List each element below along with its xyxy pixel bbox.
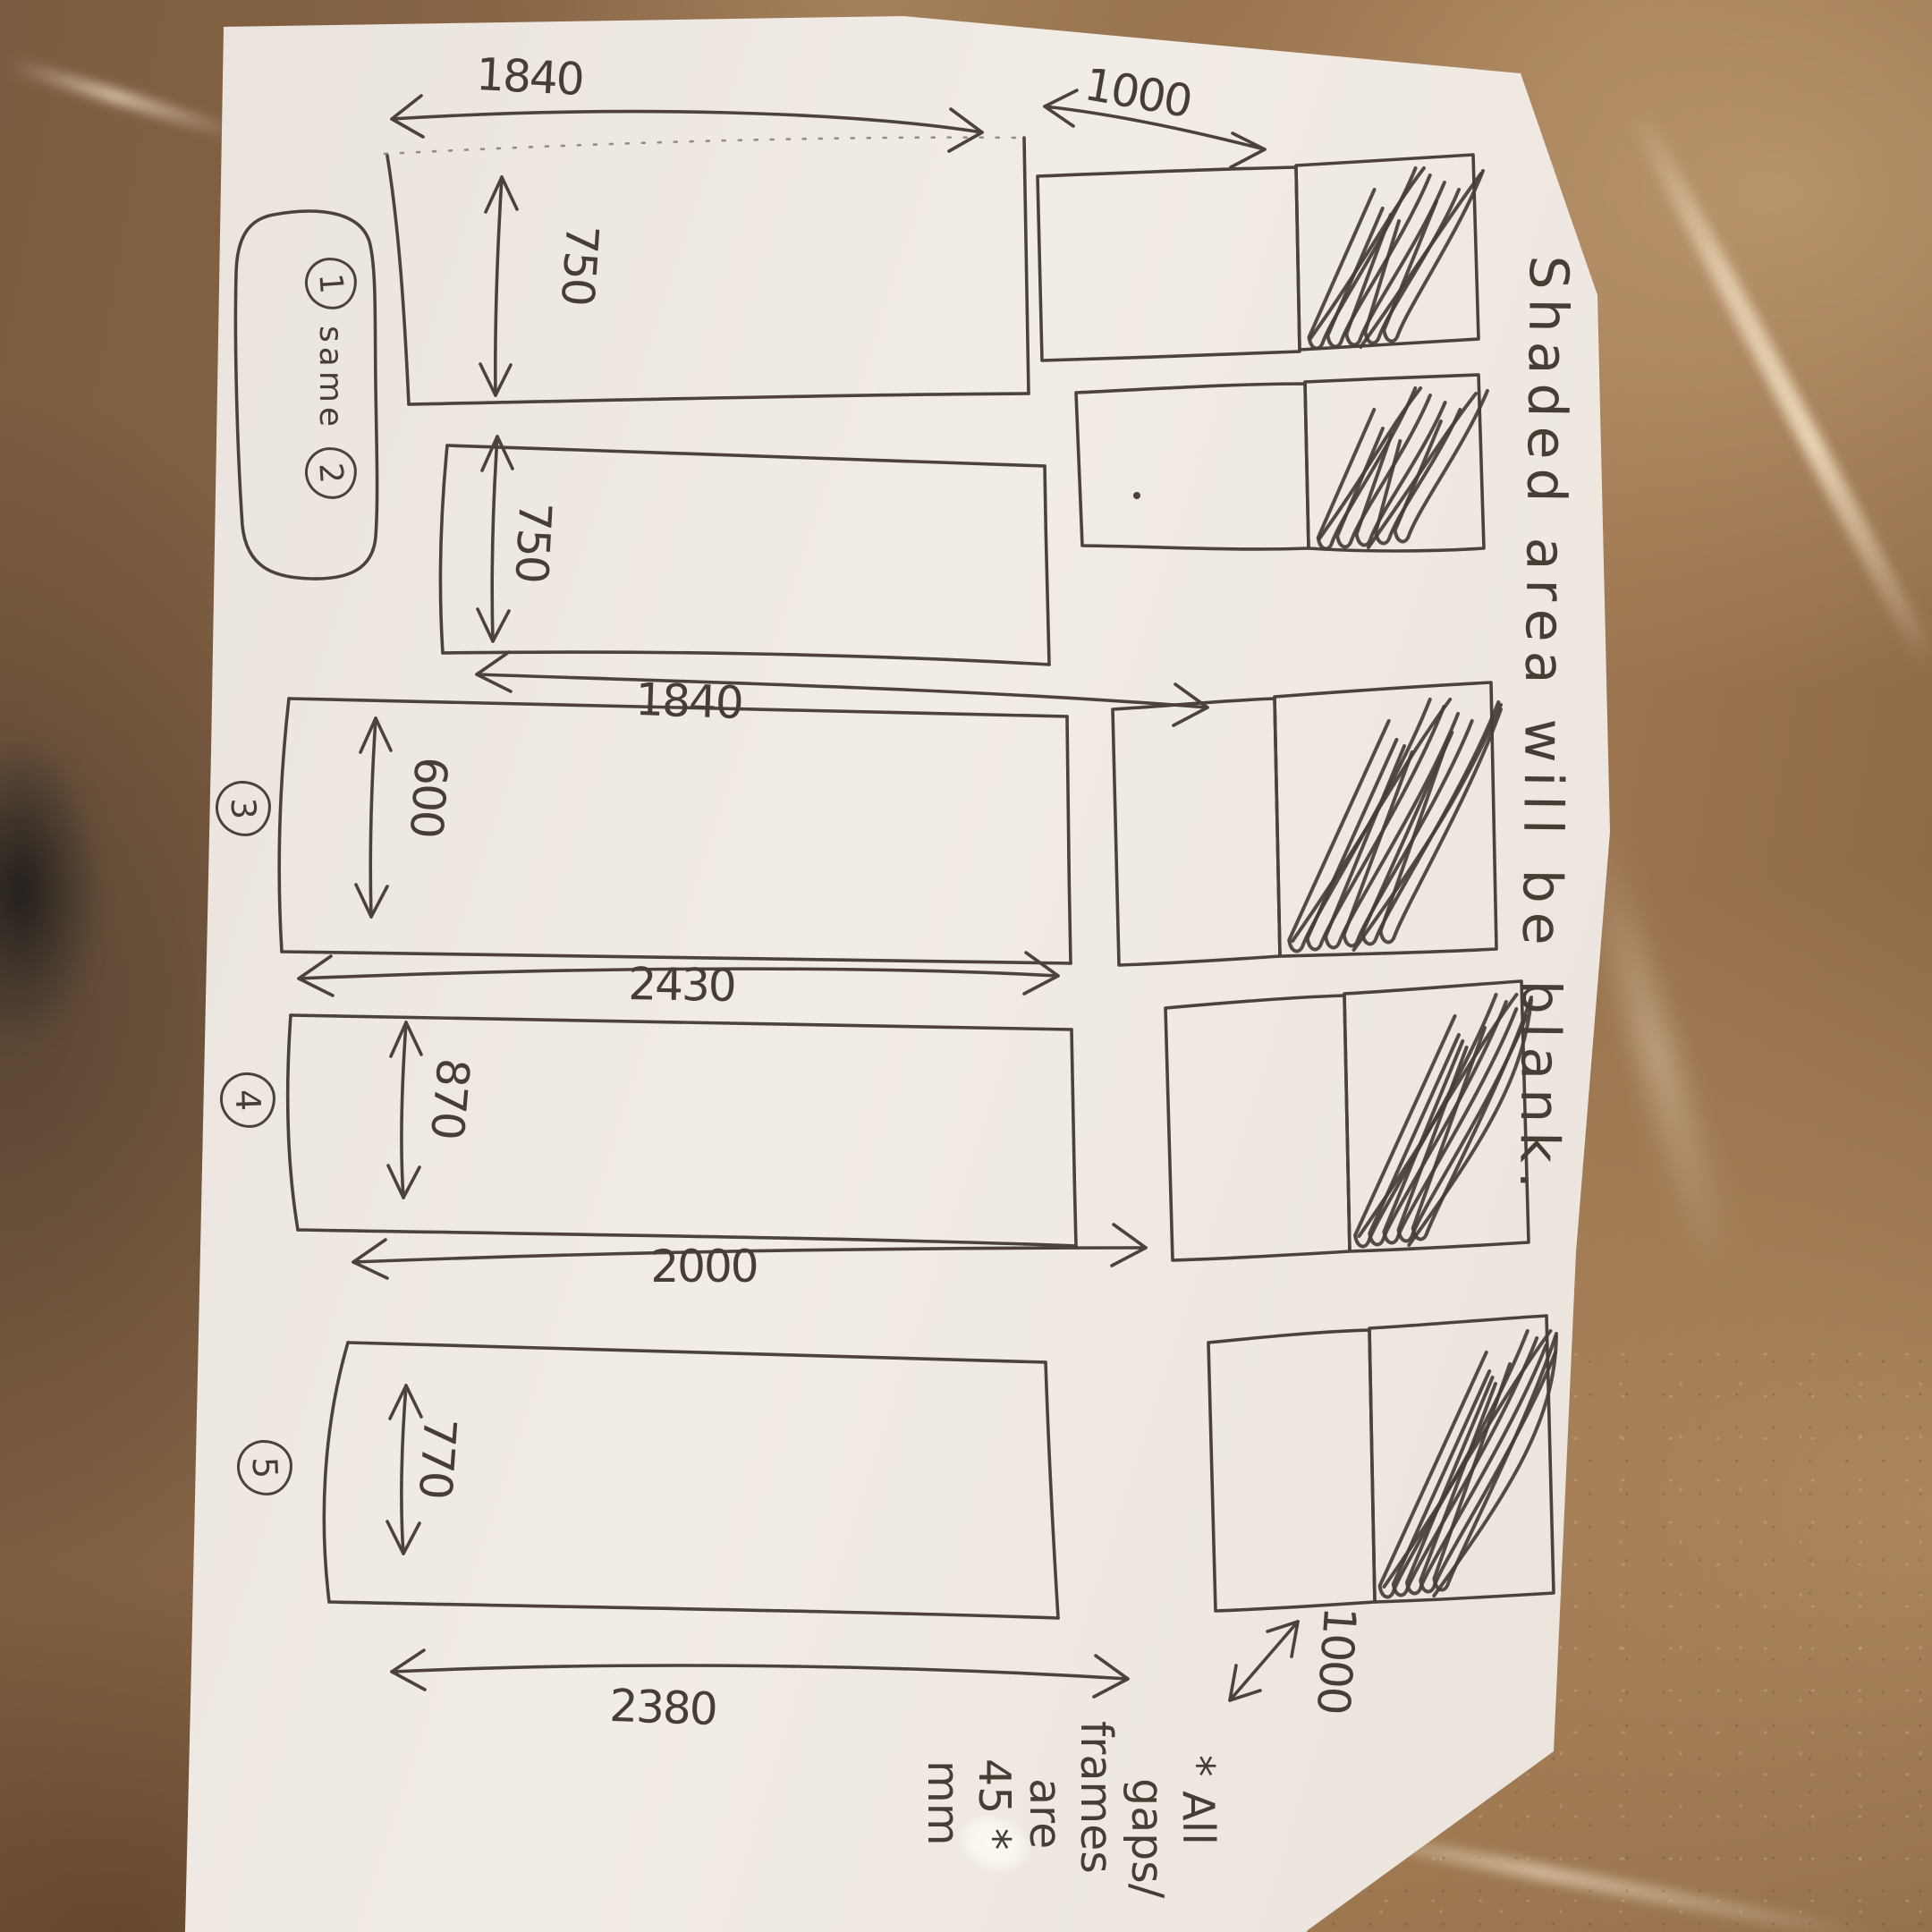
footnote-line: are: [1020, 1778, 1071, 1898]
hatch-scribble: [1380, 1331, 1556, 1597]
dim-label-right-bottom-width: 1000: [1307, 1605, 1366, 1715]
dim-label-row4-width: 2000: [650, 1241, 757, 1292]
hatch-scribble: [1309, 168, 1483, 348]
circled-number-1: 1: [303, 256, 359, 311]
dim-label-row5-height: 770: [409, 1416, 466, 1499]
circled-number-3: 3: [215, 780, 272, 837]
dim-arrows-panel-5: [387, 1385, 1128, 1697]
footnote-line: gaps/: [1122, 1778, 1173, 1898]
legend-word-same: same: [313, 326, 350, 431]
right-panel-5: [1208, 1316, 1554, 1700]
circled-number-3-digit: 3: [215, 780, 272, 837]
footnote-line: frames: [1071, 1721, 1122, 1898]
circled-number-2: 2: [303, 445, 359, 501]
circled-number-4-digit: 4: [219, 1072, 276, 1129]
legend-bubble: 1 same 2: [305, 258, 357, 499]
dim-arrows-panel-1: [392, 96, 982, 395]
dim-label-row5-width: 2380: [608, 1680, 716, 1735]
shaded-area-note: Shaded area will be blank.: [1507, 255, 1580, 1198]
panel-3-outline: [279, 699, 1071, 963]
ink-drawing: [0, 0, 1932, 1932]
gaps-footnote: * All gaps/ frames are 45 * mm: [918, 1719, 1224, 1898]
hatch-scribble: [1289, 699, 1501, 951]
dim-label-row4-height: 870: [420, 1056, 479, 1140]
dim-label-row1-height: 750: [551, 223, 608, 306]
panel-4-outline: [288, 1015, 1076, 1246]
dim-label-row3-height: 600: [400, 755, 457, 838]
hatch-scribble: [1355, 995, 1531, 1246]
footnote-line: * All: [1173, 1755, 1224, 1898]
circled-number-5: 5: [236, 1439, 293, 1496]
right-panel-1: [1038, 90, 1479, 360]
dim-label-row1-width: 1840: [475, 48, 584, 106]
circled-number-5-digit: 5: [236, 1439, 293, 1496]
circled-number-4: 4: [219, 1072, 276, 1129]
dim-label-row2-height: 750: [505, 501, 562, 583]
dim-label-row3-width: 2430: [628, 958, 735, 1012]
dim-arrows-panel-2: [477, 436, 1207, 725]
dim-label-row2-width: 1840: [634, 674, 742, 729]
hatch-scribble: [1318, 388, 1487, 548]
footnote-line: 45 *: [969, 1758, 1020, 1898]
footnote-line: mm: [918, 1760, 969, 1898]
photo-of-sketch: 1840 750 1000 750 1840 600 2430 870 2000…: [0, 0, 1932, 1932]
